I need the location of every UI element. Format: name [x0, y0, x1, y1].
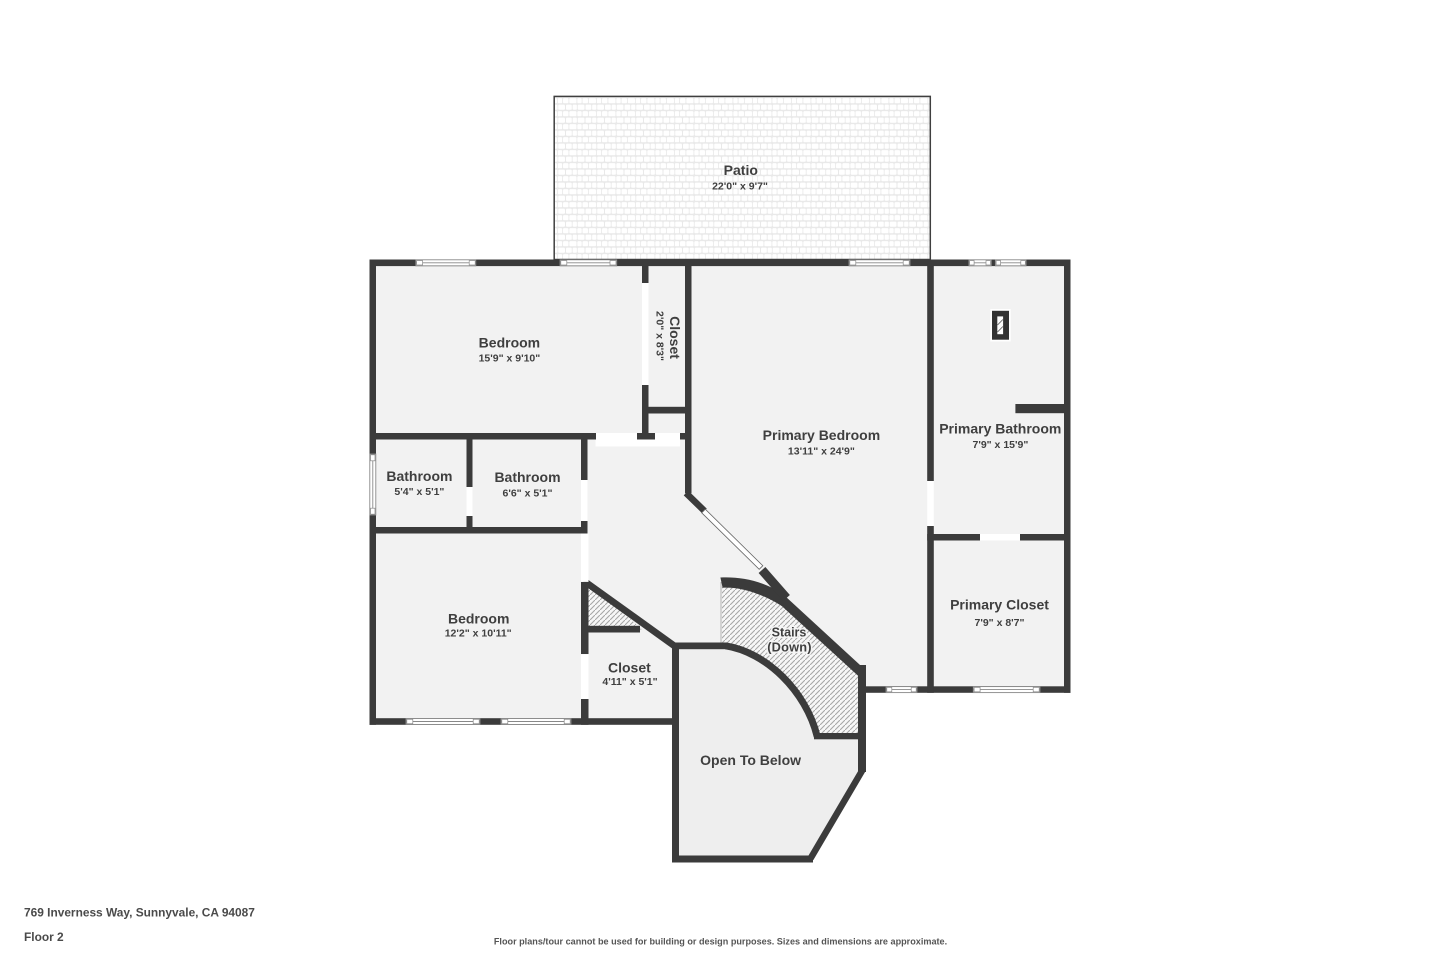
svg-text:4'11" x 5'1": 4'11" x 5'1": [602, 676, 657, 688]
svg-text:7'9" x 8'7": 7'9" x 8'7": [975, 617, 1025, 629]
svg-text:7'9" x 15'9": 7'9" x 15'9": [972, 439, 1028, 451]
svg-text:Bedroom: Bedroom: [479, 335, 540, 351]
svg-text:2'0" x 8'3": 2'0" x 8'3": [653, 311, 665, 361]
svg-text:Bathroom: Bathroom: [386, 468, 452, 484]
svg-text:5'4" x 5'1": 5'4" x 5'1": [394, 486, 444, 498]
svg-text:Bathroom: Bathroom: [494, 469, 560, 485]
svg-text:15'9" x 9'10": 15'9" x 9'10": [479, 353, 541, 365]
svg-text:12'2" x 10'11": 12'2" x 10'11": [445, 627, 512, 639]
svg-text:Closet: Closet: [667, 316, 683, 359]
svg-text:Primary Bathroom: Primary Bathroom: [939, 420, 1061, 436]
svg-text:Patio: Patio: [724, 162, 758, 178]
svg-text:6'6" x 5'1": 6'6" x 5'1": [503, 487, 553, 499]
svg-text:Stairs: Stairs: [772, 626, 807, 640]
svg-text:(Down): (Down): [767, 640, 812, 655]
svg-text:Open To Below: Open To Below: [700, 752, 801, 768]
svg-text:13'11" x 24'9": 13'11" x 24'9": [788, 446, 855, 458]
svg-text:Primary Closet: Primary Closet: [950, 597, 1049, 613]
svg-text:22'0" x 9'7": 22'0" x 9'7": [712, 181, 768, 193]
svg-text:Bedroom: Bedroom: [448, 611, 509, 627]
svg-text:Floor plans/tour cannot be use: Floor plans/tour cannot be used for buil…: [494, 936, 947, 946]
svg-text:Closet: Closet: [608, 660, 651, 676]
svg-text:Floor 2: Floor 2: [24, 930, 64, 944]
svg-text:769 Inverness Way, Sunnyvale,: 769 Inverness Way, Sunnyvale, CA 94087: [24, 905, 255, 919]
svg-text:Primary Bedroom: Primary Bedroom: [763, 427, 880, 443]
